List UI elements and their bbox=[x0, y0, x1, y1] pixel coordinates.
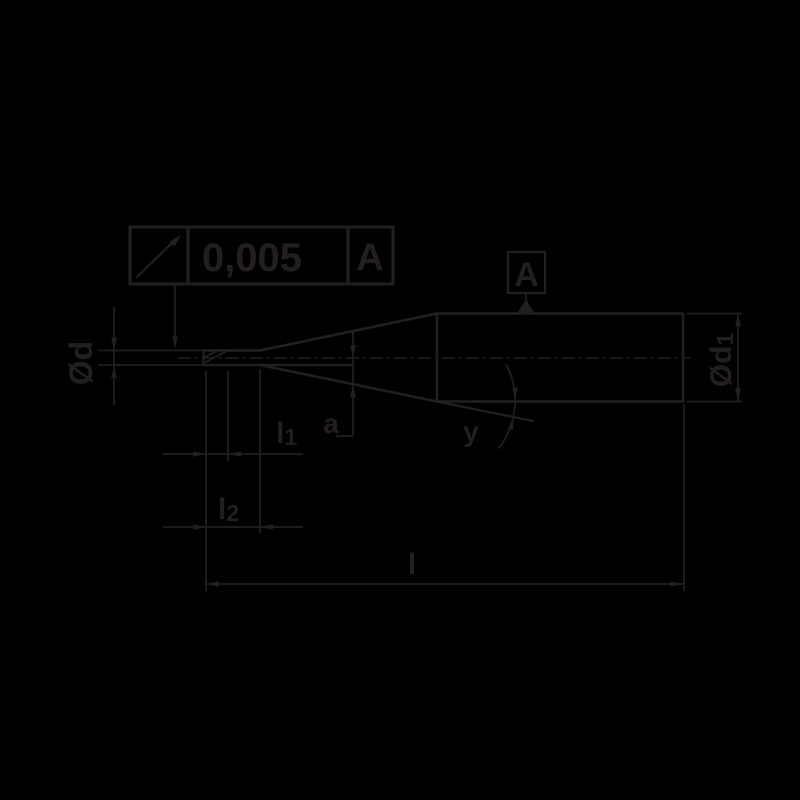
dim-neck-offset: a bbox=[323, 332, 356, 439]
dim-overall-length: l bbox=[206, 548, 684, 587]
taper-angle-reference-line bbox=[437, 402, 533, 422]
dim-shank-diameter: Ød1 bbox=[687, 314, 742, 402]
tool-outline bbox=[203, 314, 683, 422]
dim-taper-angle: y bbox=[463, 364, 518, 449]
shank-diameter-label: Ød1 bbox=[705, 333, 738, 388]
flute-edge-detail bbox=[204, 352, 216, 358]
tolerance-datum-ref: A bbox=[356, 237, 383, 279]
dim-tip-diameter: Ød bbox=[63, 307, 203, 405]
datum-triangle-icon bbox=[518, 300, 535, 314]
circular-runout-icon bbox=[137, 235, 181, 277]
datum-label: A bbox=[514, 256, 539, 294]
overall-length-label: l bbox=[408, 548, 416, 581]
dim-neck-length: l2 bbox=[163, 493, 303, 530]
taper-angle-label: y bbox=[463, 416, 479, 447]
datum-flag: A bbox=[508, 252, 545, 313]
neck-length-label: l2 bbox=[218, 493, 239, 526]
dim-flute-length: l1 bbox=[163, 417, 303, 457]
tolerance-value: 0,005 bbox=[202, 236, 302, 280]
flute-edge-detail bbox=[204, 351, 227, 363]
technical-drawing-canvas: 0,005 A A bbox=[0, 0, 800, 800]
taper-top-edge bbox=[260, 314, 437, 351]
flute-length-label: l1 bbox=[276, 417, 297, 450]
angle-arc bbox=[499, 364, 516, 449]
tolerance-leader-line bbox=[172, 284, 178, 349]
tip-diameter-label: Ød bbox=[63, 341, 99, 385]
neck-offset-label: a bbox=[323, 408, 339, 439]
taper-bottom-edge bbox=[260, 365, 437, 402]
